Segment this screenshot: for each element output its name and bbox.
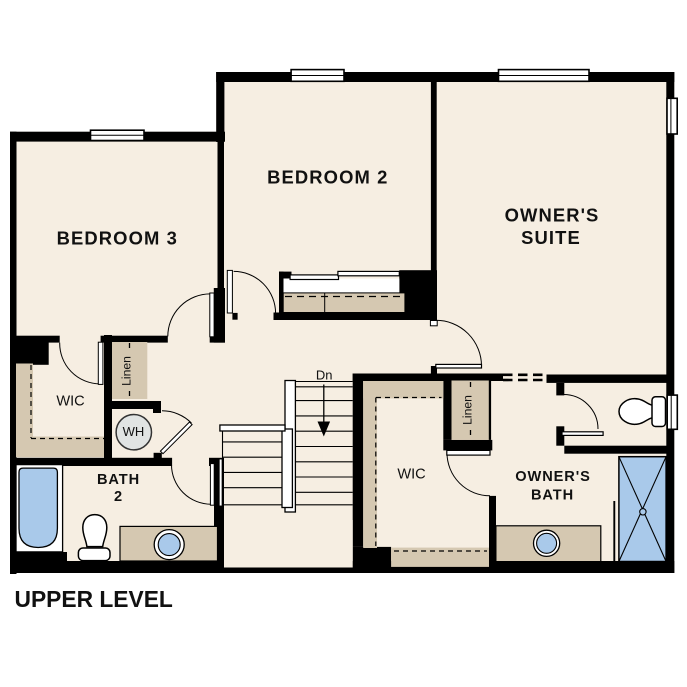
svg-text:WIC: WIC — [56, 393, 84, 409]
svg-text:BATH: BATH — [531, 488, 574, 504]
svg-text:WH: WH — [123, 424, 145, 439]
svg-text:WIC: WIC — [397, 467, 425, 483]
svg-text:BEDROOM 2: BEDROOM 2 — [267, 167, 388, 188]
svg-text:BEDROOM 3: BEDROOM 3 — [57, 228, 178, 249]
svg-text:Dn: Dn — [316, 367, 333, 382]
svg-text:2: 2 — [114, 489, 123, 505]
svg-text:SUITE: SUITE — [521, 227, 581, 248]
svg-text:Linen: Linen — [461, 395, 475, 425]
svg-text:UPPER LEVEL: UPPER LEVEL — [15, 586, 173, 612]
svg-text:Linen: Linen — [120, 356, 134, 386]
svg-text:OWNER'S: OWNER'S — [515, 469, 590, 485]
svg-text:OWNER'S: OWNER'S — [505, 205, 600, 226]
svg-text:BATH: BATH — [97, 472, 140, 488]
